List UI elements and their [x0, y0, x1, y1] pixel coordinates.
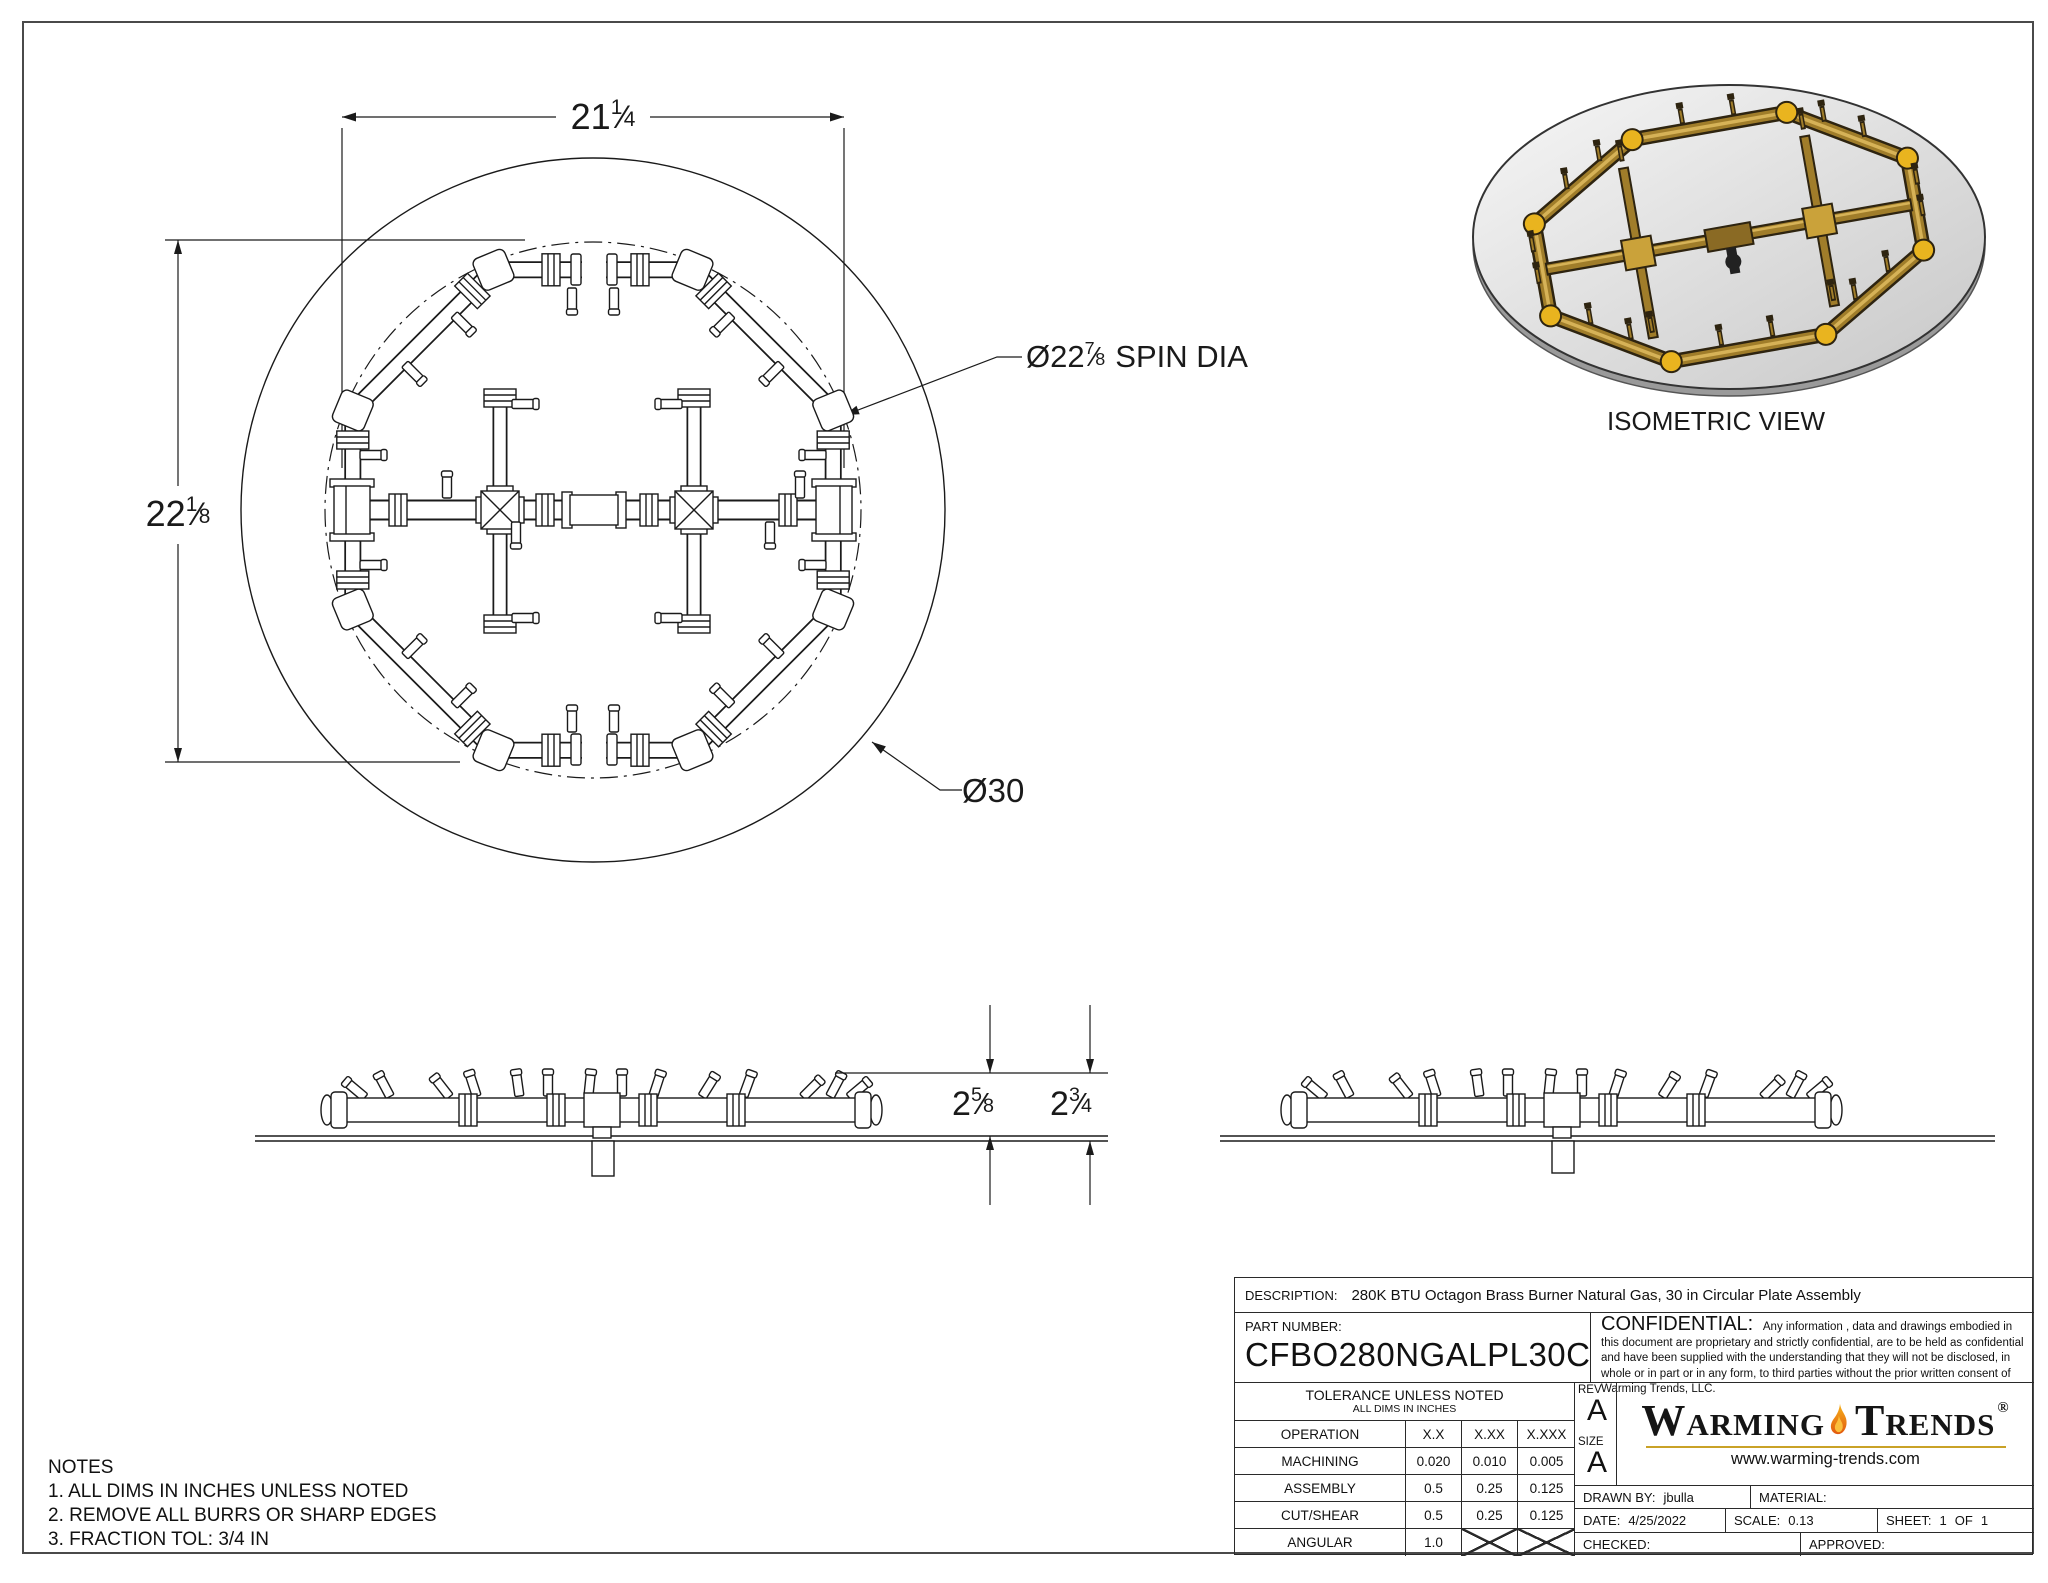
tolerance-cell: 0.5	[1406, 1502, 1462, 1529]
website-url: www.warming-trends.com	[1731, 1450, 1920, 1469]
overall-height-label: 23⁄4	[1030, 1083, 1112, 1125]
logo-underline	[1646, 1446, 2006, 1448]
scale-label: SCALE:	[1734, 1513, 1780, 1528]
checked-label: CHECKED:	[1583, 1537, 1650, 1552]
top-view	[165, 113, 1022, 863]
burner-height-label: 25⁄8	[932, 1083, 1014, 1125]
logo-word-trends: Trends	[1855, 1399, 1995, 1443]
tolerance-cell: 0.25	[1462, 1502, 1518, 1529]
drawn-by-label: DRAWN BY:	[1583, 1490, 1655, 1505]
spin-dia-label: Ø227⁄8SPIN DIA	[1026, 336, 1346, 378]
notes: NOTES 1. ALL DIMS IN INCHES UNLESS NOTED…	[48, 1456, 437, 1552]
flame-icon	[1827, 1399, 1853, 1443]
approved-label: APPROVED:	[1809, 1537, 1885, 1552]
tolerance-col-header: X.XXX	[1518, 1421, 1575, 1448]
material-cell: MATERIAL:	[1751, 1486, 2034, 1509]
logo-word-warming: Warming	[1641, 1399, 1825, 1443]
sheet-label: SHEET:	[1886, 1513, 1932, 1528]
date-value: 4/25/2022	[1628, 1513, 1686, 1528]
title-block: DESCRIPTION: 280K BTU Octagon Brass Burn…	[1234, 1277, 2033, 1555]
note-line: 3. FRACTION TOL: 3/4 IN	[48, 1528, 437, 1552]
dim-width-label: 211⁄4	[553, 96, 653, 138]
warming-trends-logo: Warming Trends ® www.warming-trends.com	[1617, 1383, 2034, 1486]
sheet-total: 1	[1981, 1513, 1988, 1528]
confidential-cell: CONFIDENTIAL: Any information , data and…	[1591, 1313, 2034, 1383]
tolerance-cell: 0.5	[1406, 1475, 1462, 1502]
dim-height-label: 221⁄8	[126, 493, 230, 535]
description-value: 280K BTU Octagon Brass Burner Natural Ga…	[1351, 1287, 1860, 1304]
description-label: DESCRIPTION:	[1245, 1288, 1337, 1303]
tolerance-cell-crossed	[1518, 1529, 1575, 1556]
sheet-of: OF	[1955, 1513, 1973, 1528]
tolerance-table: TOLERANCE UNLESS NOTED ALL DIMS IN INCHE…	[1235, 1383, 1575, 1556]
tolerance-cell: 0.010	[1462, 1448, 1518, 1475]
iso-view	[1473, 63, 1985, 396]
material-label: MATERIAL:	[1759, 1490, 1827, 1505]
description-row: DESCRIPTION: 280K BTU Octagon Brass Burn…	[1235, 1278, 2034, 1313]
side-view-right	[1220, 1069, 1995, 1173]
tolerance-cell: 0.005	[1518, 1448, 1575, 1475]
approved-cell: APPROVED:	[1801, 1533, 2034, 1556]
tolerance-cell: 0.125	[1518, 1475, 1575, 1502]
rev-cell: REV A	[1575, 1383, 1617, 1435]
date-label: DATE:	[1583, 1513, 1620, 1528]
rev-value: A	[1578, 1396, 1616, 1426]
drawing-sheet: 211⁄4 221⁄8 Ø227⁄8SPIN DIA Ø30 25⁄8 23⁄4…	[0, 0, 2048, 1583]
size-value: A	[1578, 1448, 1616, 1478]
isometric-view-label: ISOMETRIC VIEW	[1566, 406, 1866, 436]
tolerance-cell: 0.125	[1518, 1502, 1575, 1529]
registered-mark: ®	[1997, 1401, 2009, 1416]
tolerance-cell: 0.020	[1406, 1448, 1462, 1475]
tolerance-subtitle: ALL DIMS IN INCHES	[1235, 1403, 1574, 1415]
part-number-cell: PART NUMBER: CFBO280NGALPL30C	[1235, 1313, 1591, 1383]
tolerance-title: TOLERANCE UNLESS NOTED	[1235, 1387, 1574, 1403]
drawn-by-value: jbulla	[1663, 1490, 1693, 1505]
date-cell: DATE: 4/25/2022	[1575, 1509, 1726, 1533]
confidential-heading: CONFIDENTIAL:	[1601, 1313, 1753, 1335]
tolerance-cell: 1.0	[1406, 1529, 1462, 1556]
part-number-label: PART NUMBER:	[1245, 1319, 1590, 1334]
scale-value: 0.13	[1788, 1513, 1813, 1528]
notes-title: NOTES	[48, 1456, 437, 1480]
plate-dia-label: Ø30	[962, 770, 1082, 812]
tolerance-col-header: X.XX	[1462, 1421, 1518, 1448]
sheet-number: 1	[1940, 1513, 1947, 1528]
tolerance-cell: MACHINING	[1235, 1448, 1406, 1475]
tolerance-cell: ANGULAR	[1235, 1529, 1406, 1556]
sheet-cell: SHEET: 1 OF 1	[1878, 1509, 2034, 1533]
drawn-by-cell: DRAWN BY: jbulla	[1575, 1486, 1751, 1509]
tolerance-cell-crossed	[1462, 1529, 1518, 1556]
checked-cell: CHECKED:	[1575, 1533, 1801, 1556]
tolerance-cell: ASSEMBLY	[1235, 1475, 1406, 1502]
note-line: 2. REMOVE ALL BURRS OR SHARP EDGES	[48, 1504, 437, 1528]
tolerance-cell: CUT/SHEAR	[1235, 1502, 1406, 1529]
size-cell: SIZE A	[1575, 1435, 1617, 1486]
scale-cell: SCALE: 0.13	[1726, 1509, 1878, 1533]
note-line: 1. ALL DIMS IN INCHES UNLESS NOTED	[48, 1480, 437, 1504]
tolerance-cell: 0.25	[1462, 1475, 1518, 1502]
tolerance-col-header: OPERATION	[1235, 1421, 1406, 1448]
part-number-value: CFBO280NGALPL30C	[1245, 1336, 1590, 1374]
tolerance-col-header: X.X	[1406, 1421, 1462, 1448]
